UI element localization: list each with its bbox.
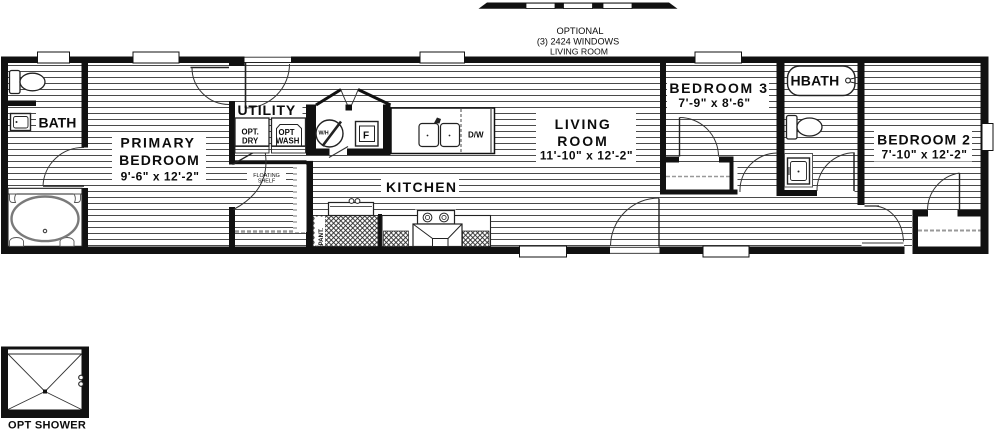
- svg-text:D/W: D/W: [468, 131, 484, 140]
- svg-text:11'-10" x 12'-2": 11'-10" x 12'-2": [540, 149, 633, 163]
- svg-text:BEDROOM 2: BEDROOM 2: [877, 132, 971, 148]
- svg-text:(3) 2424 WINDOWS: (3) 2424 WINDOWS: [537, 36, 619, 46]
- svg-text:LIVING: LIVING: [555, 116, 612, 132]
- svg-text:DRY: DRY: [242, 137, 259, 146]
- svg-text:OPT.: OPT.: [242, 128, 259, 137]
- svg-text:9'-6" x 12'-2": 9'-6" x 12'-2": [121, 170, 200, 184]
- svg-text:WASH: WASH: [276, 137, 300, 146]
- svg-text:BATH: BATH: [39, 115, 77, 131]
- svg-text:HBATH: HBATH: [791, 73, 840, 89]
- svg-text:7'-10" x 12'-2": 7'-10" x 12'-2": [882, 148, 968, 162]
- svg-text:OPTIONAL: OPTIONAL: [556, 26, 603, 36]
- svg-text:OPT SHOWER: OPT SHOWER: [8, 420, 86, 432]
- svg-text:W/H: W/H: [319, 131, 329, 137]
- svg-text:SHELF: SHELF: [258, 179, 276, 185]
- svg-text:F: F: [363, 131, 369, 142]
- svg-text:LIVING ROOM: LIVING ROOM: [550, 47, 608, 57]
- svg-text:PRIMARY: PRIMARY: [120, 135, 195, 151]
- svg-text:7'-9" x 8'-6": 7'-9" x 8'-6": [678, 96, 750, 110]
- svg-text:BEDROOM: BEDROOM: [119, 152, 200, 168]
- svg-text:UTILITY: UTILITY: [238, 102, 296, 118]
- svg-text:BEDROOM 3: BEDROOM 3: [669, 80, 768, 96]
- svg-text:ROOM: ROOM: [557, 133, 609, 149]
- svg-text:KITCHEN: KITCHEN: [386, 179, 457, 195]
- svg-text:PANT.: PANT.: [318, 228, 325, 246]
